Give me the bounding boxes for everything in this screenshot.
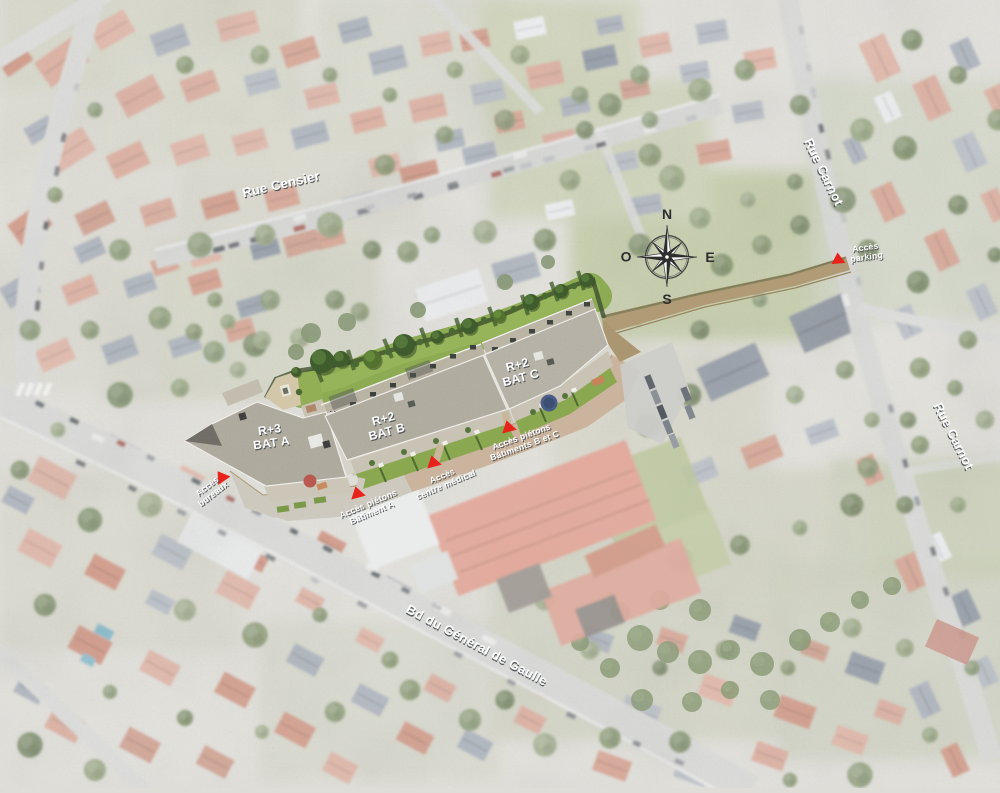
- svg-text:S: S: [662, 291, 671, 307]
- svg-text:N: N: [662, 206, 672, 222]
- svg-text:O: O: [621, 249, 632, 265]
- svg-text:E: E: [705, 249, 714, 265]
